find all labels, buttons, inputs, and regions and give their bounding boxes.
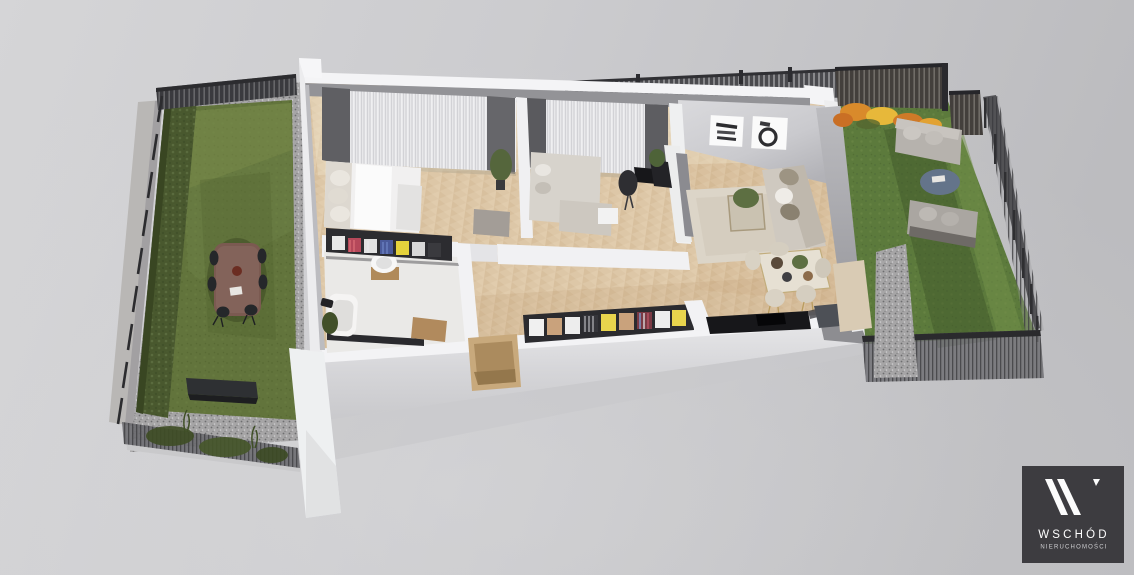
svg-text:NIERUCHOMOŚCI: NIERUCHOMOŚCI [1040, 543, 1107, 551]
svg-text:WSCHÓD: WSCHÓD [1038, 528, 1110, 541]
